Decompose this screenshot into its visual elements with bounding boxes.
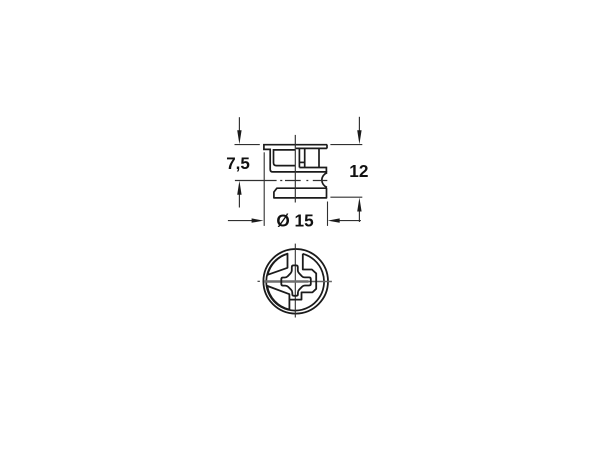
svg-text:Ø 15: Ø 15: [276, 210, 314, 230]
svg-text:7,5: 7,5: [226, 154, 250, 173]
svg-text:12: 12: [349, 161, 368, 181]
